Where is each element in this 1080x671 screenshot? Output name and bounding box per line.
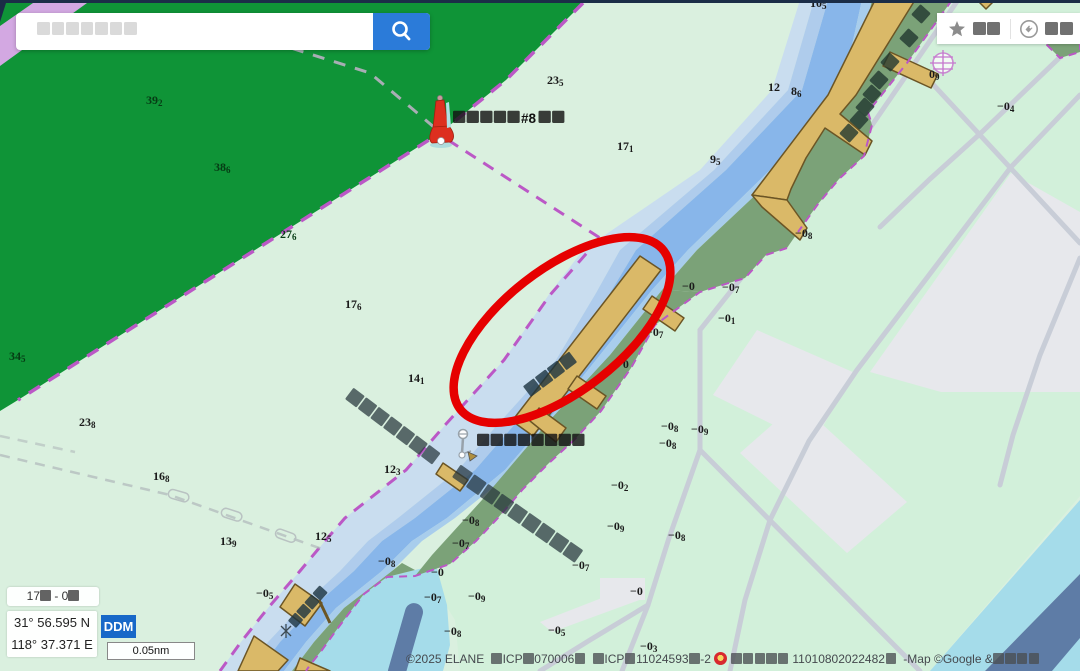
svg-text:−0: −0 xyxy=(682,279,695,293)
svg-text:−0: −0 xyxy=(431,565,444,579)
svg-text:−0: −0 xyxy=(630,584,643,598)
svg-text:12: 12 xyxy=(768,80,780,94)
svg-text:#8: #8 xyxy=(521,111,537,126)
